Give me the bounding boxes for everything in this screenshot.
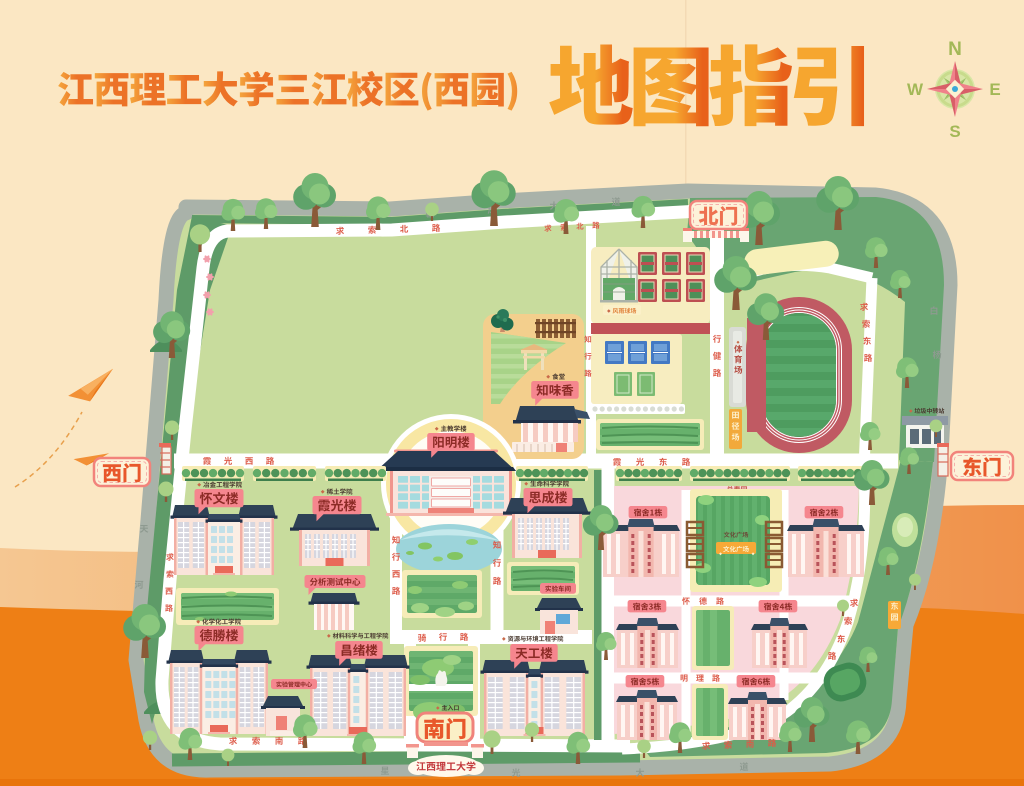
svg-text:E: E bbox=[989, 80, 1000, 99]
svg-text:N: N bbox=[948, 39, 962, 60]
svg-text:S: S bbox=[949, 122, 960, 141]
svg-text:W: W bbox=[907, 80, 924, 99]
